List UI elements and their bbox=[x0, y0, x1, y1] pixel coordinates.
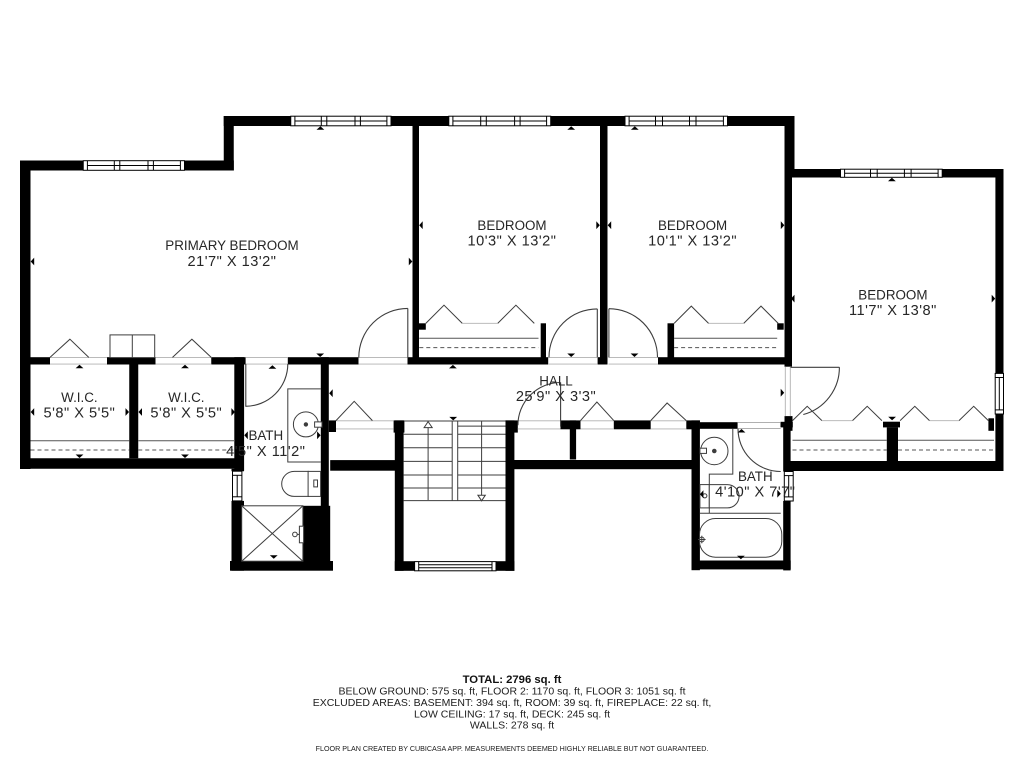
svg-text:LOW CEILING: 17 sq. ft, DECK:: LOW CEILING: 17 sq. ft, DECK: 245 sq. ft bbox=[414, 709, 610, 721]
svg-text:BATH: BATH bbox=[248, 428, 283, 443]
svg-text:BEDROOM: BEDROOM bbox=[477, 218, 546, 233]
svg-text:FLOOR PLAN CREATED BY CUBICASA: FLOOR PLAN CREATED BY CUBICASA APP. MEAS… bbox=[316, 745, 709, 753]
svg-text:21'7" X 13'2": 21'7" X 13'2" bbox=[188, 254, 277, 270]
svg-text:PRIMARY BEDROOM: PRIMARY BEDROOM bbox=[165, 238, 298, 253]
svg-text:W.I.C.: W.I.C. bbox=[168, 390, 204, 405]
svg-text:EXCLUDED AREAS: BASEMENT: 394: EXCLUDED AREAS: BASEMENT: 394 sq. ft, RO… bbox=[313, 697, 712, 709]
svg-text:11'7" X 13'8": 11'7" X 13'8" bbox=[849, 303, 937, 319]
svg-text:TOTAL: 2796 sq. ft: TOTAL: 2796 sq. ft bbox=[463, 674, 562, 686]
svg-text:WALLS: 278 sq. ft: WALLS: 278 sq. ft bbox=[470, 720, 554, 732]
svg-text:4'10" X 7'7": 4'10" X 7'7" bbox=[715, 485, 795, 501]
svg-text:HALL: HALL bbox=[539, 374, 573, 389]
svg-text:10'3" X 13'2": 10'3" X 13'2" bbox=[468, 233, 557, 249]
svg-text:BEDROOM: BEDROOM bbox=[658, 218, 727, 233]
svg-text:4'5" X 11'2": 4'5" X 11'2" bbox=[226, 444, 305, 460]
svg-text:5'8" X 5'5": 5'8" X 5'5" bbox=[44, 406, 116, 422]
svg-text:BELOW GROUND: 575 sq. ft, FLOO: BELOW GROUND: 575 sq. ft, FLOOR 2: 1170 … bbox=[338, 685, 685, 697]
svg-text:BEDROOM: BEDROOM bbox=[858, 288, 927, 303]
svg-text:5'8" X 5'5": 5'8" X 5'5" bbox=[150, 406, 222, 422]
svg-text:25'9" X 3'3": 25'9" X 3'3" bbox=[516, 389, 596, 405]
svg-text:10'1" X 13'2": 10'1" X 13'2" bbox=[648, 233, 737, 249]
svg-text:BATH: BATH bbox=[738, 469, 773, 484]
svg-text:W.I.C.: W.I.C. bbox=[61, 390, 97, 405]
